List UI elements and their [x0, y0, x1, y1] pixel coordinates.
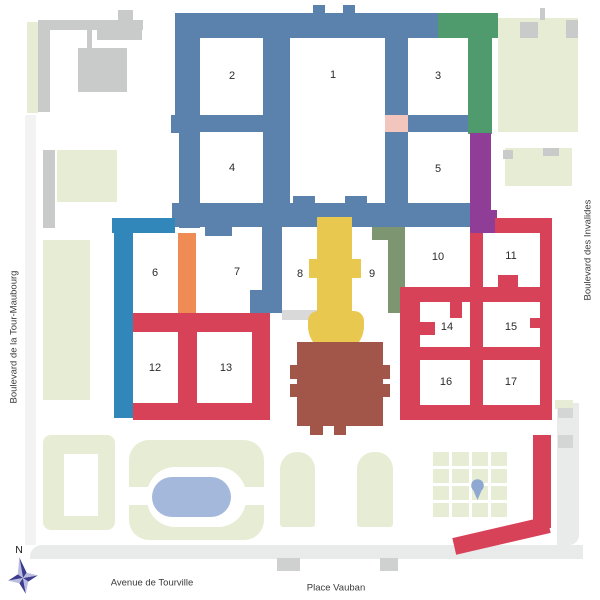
- courtyard-label-6: 6: [152, 267, 158, 279]
- east-lawn: [505, 148, 572, 186]
- southeast-complex: [400, 347, 552, 360]
- courtyard-label-15: 15: [505, 321, 517, 333]
- east-gallery: [470, 210, 497, 233]
- dome-portal: [310, 426, 323, 435]
- garden-pond: [152, 477, 231, 517]
- church-nave: [317, 217, 352, 318]
- courtyard-label-3: 3: [435, 70, 441, 82]
- compass-rose-icon: [0, 555, 47, 600]
- northeast-wing: [468, 38, 492, 134]
- neighbor-building: [78, 48, 127, 92]
- tree-lawn: [280, 452, 315, 527]
- southwest-complex: [133, 313, 270, 332]
- courtyard-label-11: 11: [505, 250, 516, 262]
- southwest-complex: [178, 332, 197, 403]
- southeast-complex: [540, 233, 552, 420]
- neighbor-building: [520, 22, 538, 38]
- courtyard-label-5: 5: [435, 163, 441, 175]
- neighbor-building: [558, 435, 573, 448]
- inner-wing: [385, 13, 408, 116]
- road-marking: [380, 558, 398, 571]
- neighbor-building: [540, 8, 545, 20]
- neighbor-building: [118, 10, 133, 20]
- courtyard-label-17: 17: [505, 376, 517, 388]
- garden-path: [244, 487, 264, 505]
- neighbor-building: [543, 148, 559, 156]
- east-gallery: [470, 133, 491, 211]
- lawn: [57, 150, 117, 202]
- courtyard-label-8: 8: [297, 268, 303, 280]
- southwest-complex: [133, 403, 270, 420]
- southeast-complex: [498, 275, 518, 288]
- pink-pavilion: [385, 115, 408, 132]
- street-label-avenue-de-tourville: Avenue de Tourville: [111, 578, 194, 589]
- neighbor-building: [43, 150, 55, 228]
- cross-wing: [408, 115, 470, 132]
- northeast-wing: [438, 13, 498, 38]
- gallery-pavilion: [293, 196, 315, 204]
- neighbor-building: [38, 25, 50, 112]
- neighbor-building: [87, 30, 92, 60]
- road-east: [557, 403, 579, 545]
- neighbor-building: [566, 20, 578, 38]
- dome-chapel: [383, 365, 390, 379]
- compass-north-label: N: [15, 544, 23, 556]
- garden-plots: [433, 452, 507, 517]
- dome-church: [297, 342, 383, 426]
- church-transept: [352, 259, 361, 278]
- gallery-pavilion: [345, 196, 367, 204]
- southeast-complex: [400, 405, 552, 420]
- inner-wing: [263, 13, 290, 208]
- dome-portal: [334, 426, 346, 435]
- road-marking: [277, 558, 300, 571]
- neighbor-building: [503, 150, 513, 159]
- southwest-complex: [252, 332, 270, 403]
- southeast-complex: [420, 322, 435, 335]
- courtyard-label-16: 16: [440, 376, 452, 388]
- lawn-strip: [27, 22, 38, 113]
- courtyard-label-2: 2: [229, 70, 235, 82]
- southeast-complex: [400, 287, 552, 302]
- south-wing: [262, 227, 282, 313]
- street-label-place-vauban: Place Vauban: [307, 583, 365, 594]
- boundary-wall: [533, 435, 551, 528]
- southeast-complex: [530, 318, 540, 328]
- neighbor-building: [97, 22, 142, 40]
- north-pavilion: [313, 5, 325, 14]
- courtyard-label-14: 14: [441, 321, 453, 333]
- street-label-boulevard-tour-maubourg: Boulevard de la Tour-Maubourg: [9, 271, 20, 404]
- southeast-complex: [495, 218, 552, 233]
- courtyard-label-10: 10: [432, 251, 444, 263]
- road-west: [25, 115, 36, 545]
- lawn-inner-court: [64, 454, 98, 516]
- lawn: [43, 240, 90, 400]
- garden-path: [129, 487, 149, 505]
- courtyard-label-7: 7: [234, 266, 240, 278]
- olive-gallery: [372, 227, 405, 240]
- neighbor-building: [558, 408, 573, 418]
- courtyard-label-1: 1: [330, 69, 336, 81]
- location-marker-icon: [471, 479, 484, 501]
- south-wing-annex: [250, 290, 262, 313]
- orange-gallery: [178, 233, 196, 314]
- dome-chapel: [383, 384, 390, 397]
- inner-wing: [385, 131, 408, 204]
- southeast-complex: [470, 233, 483, 287]
- dome-chapel: [290, 384, 297, 397]
- tree-lawn: [357, 452, 393, 527]
- street-label-boulevard-invalides: Boulevard des Invalides: [583, 200, 594, 301]
- cross-wing: [172, 115, 263, 132]
- gallery-junction: [205, 227, 232, 236]
- west-gallery: [114, 218, 133, 418]
- courtyard-label-12: 12: [149, 362, 161, 374]
- north-pavilion: [343, 5, 355, 14]
- southeast-complex: [450, 302, 462, 318]
- courtyard-label-13: 13: [220, 362, 232, 374]
- dome-chapel: [290, 365, 297, 379]
- road-south: [30, 545, 583, 559]
- southeast-complex: [470, 302, 483, 420]
- courtyard-label-9: 9: [369, 268, 375, 280]
- courtyard-label-4: 4: [229, 162, 235, 174]
- invalides-map: 1 2 3 4 5 6 7 8 9 10 11 12 13 14 15 16 1…: [0, 0, 600, 600]
- church-transept: [309, 259, 318, 278]
